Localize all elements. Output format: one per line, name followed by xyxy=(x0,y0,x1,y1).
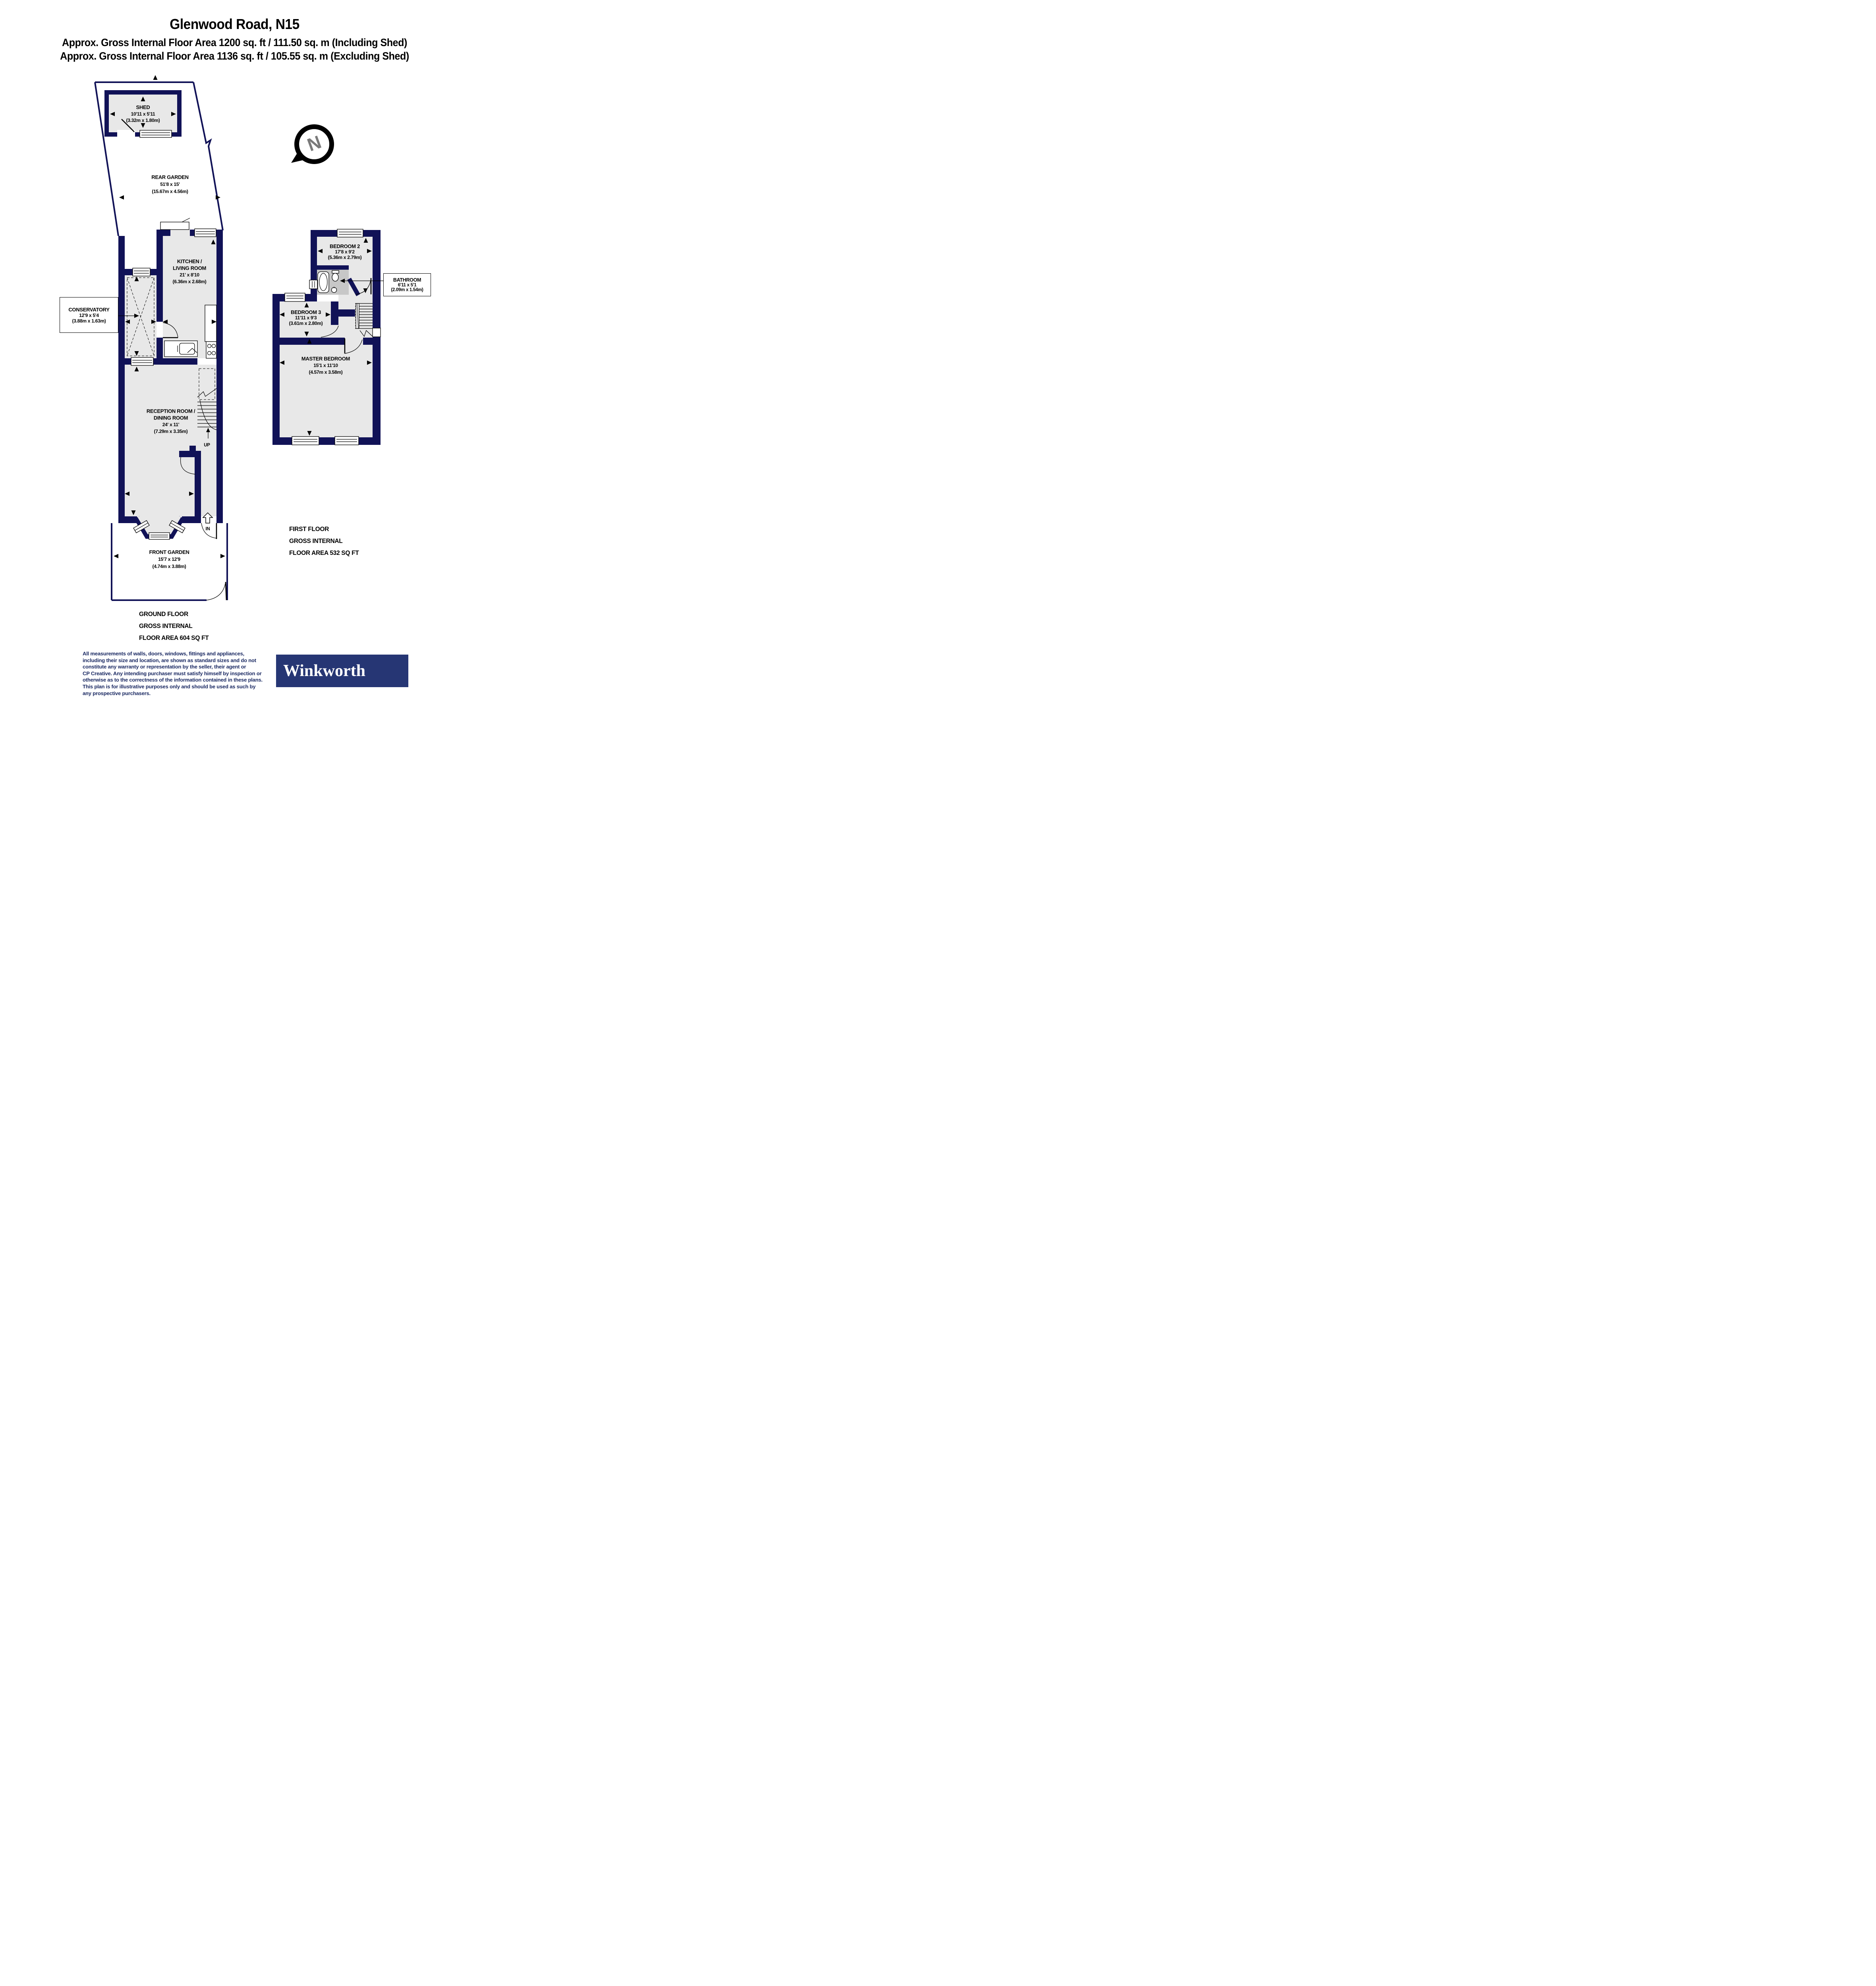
kitchen-metric: (6.36m x 2.68m) xyxy=(173,279,207,284)
master-window-right-icon xyxy=(335,437,359,445)
bathroom-window-icon xyxy=(309,280,317,289)
kitchen-imperial: 21' x 8'10 xyxy=(180,272,199,278)
bedroom2-window-icon xyxy=(337,229,363,237)
shed-imperial: 10'11 x 5'11 xyxy=(131,111,155,117)
disclaimer-line: CP Creative. Any intending purchaser mus… xyxy=(83,670,281,677)
first-caption-1: FIRST FLOOR xyxy=(289,524,359,535)
bathroom-metric: (2.09m x 1.54m) xyxy=(391,288,423,292)
front-garden-label: FRONT GARDEN xyxy=(149,549,189,555)
conservatory-bottom-window-icon xyxy=(131,357,153,365)
disclaimer-line: otherwise as to the correctness of the i… xyxy=(83,677,281,684)
disclaimer-line: This plan is for illustrative purposes o… xyxy=(83,684,281,690)
bedroom3-label: BEDROOM 3 xyxy=(291,309,321,315)
toilet-icon xyxy=(332,270,339,281)
first-caption-3: FLOOR AREA 532 SQ FT xyxy=(289,547,359,559)
rear-garden-imperial: 51'8 x 15' xyxy=(160,182,180,187)
shed-label: SHED xyxy=(136,104,150,110)
kitchen-label-1: KITCHEN / xyxy=(177,259,202,265)
kitchen-garden-doorway xyxy=(170,230,190,236)
first-caption-2: GROSS INTERNAL xyxy=(289,535,359,547)
bathtub-icon xyxy=(318,272,329,293)
bedroom3-metric: (3.61m x 2.80m) xyxy=(289,321,323,326)
bathroom-label-box: BATHROOM 6'11 x 5'1 (2.09m x 1.54m) xyxy=(383,273,431,296)
reception-label-2: DINING ROOM xyxy=(154,415,188,421)
conservatory-top-window-icon xyxy=(133,268,150,276)
hob-icon xyxy=(206,342,216,358)
ground-floor-caption: GROUND FLOOR GROSS INTERNAL FLOOR AREA 6… xyxy=(139,609,209,644)
conservatory-metric: (3.88m x 1.63m) xyxy=(72,318,106,324)
in-label: IN xyxy=(206,527,210,531)
conservatory-imperial: 12'9 x 5'4 xyxy=(79,313,99,318)
shed-metric: (3.32m x 1.80m) xyxy=(126,118,160,123)
bedroom3-imperial: 11'11 x 9'3 xyxy=(295,315,317,321)
conservatory-label: CONSERVATORY xyxy=(68,307,109,313)
master-bedroom-metric: (4.57m x 3.58m) xyxy=(309,369,343,375)
bay-window xyxy=(133,516,185,539)
disclaimer-line: constitute any warranty or representatio… xyxy=(83,664,281,670)
bedroom3-window-icon xyxy=(285,293,305,301)
front-garden-imperial: 15'7 x 12'9 xyxy=(158,556,180,562)
disclaimer-line: any prospective purchasers. xyxy=(83,690,281,697)
kitchen-label-2: LIVING ROOM xyxy=(173,265,206,271)
reception-imperial: 24' x 11' xyxy=(162,422,179,427)
floorplan-drawing xyxy=(0,0,469,703)
landing-floor xyxy=(338,295,373,345)
bedroom2-imperial: 17'8 x 9'2 xyxy=(335,249,354,255)
reception-floor xyxy=(125,365,216,516)
floorplan-page: Glenwood Road, N15 Approx. Gross Interna… xyxy=(0,0,469,703)
bedroom2-label: BEDROOM 2 xyxy=(330,243,360,249)
master-window-left-icon xyxy=(292,437,319,445)
disclaimer-line: including their size and location, are s… xyxy=(83,657,281,664)
shed-window-icon xyxy=(140,130,172,137)
ground-caption-1: GROUND FLOOR xyxy=(139,609,209,620)
conservatory-label-box: CONSERVATORY 12'9 x 5'4 (3.88m x 1.63m) xyxy=(60,297,118,333)
reception-metric: (7.29m x 3.35m) xyxy=(154,429,188,434)
ground-caption-3: FLOOR AREA 604 SQ FT xyxy=(139,632,209,644)
bedroom2-metric: (5.36m x 2.79m) xyxy=(328,255,362,260)
master-bedroom-label: MASTER BEDROOM xyxy=(301,356,350,362)
kitchen-window-icon xyxy=(195,229,216,237)
rear-garden-metric: (15.67m x 4.56m) xyxy=(152,189,188,194)
ground-floor-rooms xyxy=(125,236,216,516)
winkworth-logo: Winkworth xyxy=(276,655,408,687)
bathroom-imperial: 6'11 x 5'1 xyxy=(398,283,417,288)
up-label: UP xyxy=(204,443,210,448)
reception-label-1: RECEPTION ROOM / xyxy=(147,408,195,414)
kitchen-step xyxy=(160,218,190,230)
kitchen-counter xyxy=(205,305,216,342)
first-floor-caption: FIRST FLOOR GROSS INTERNAL FLOOR AREA 53… xyxy=(289,524,359,559)
master-bedroom-imperial: 15'1 x 11'10 xyxy=(313,363,338,368)
front-garden-metric: (4.74m x 3.88m) xyxy=(153,564,186,569)
disclaimer-line: All measurements of walls, doors, window… xyxy=(83,651,281,657)
bathroom-label: BATHROOM xyxy=(393,277,421,283)
disclaimer-text: All measurements of walls, doors, window… xyxy=(83,651,281,697)
ground-caption-2: GROSS INTERNAL xyxy=(139,620,209,632)
rear-garden-label: REAR GARDEN xyxy=(151,174,188,180)
